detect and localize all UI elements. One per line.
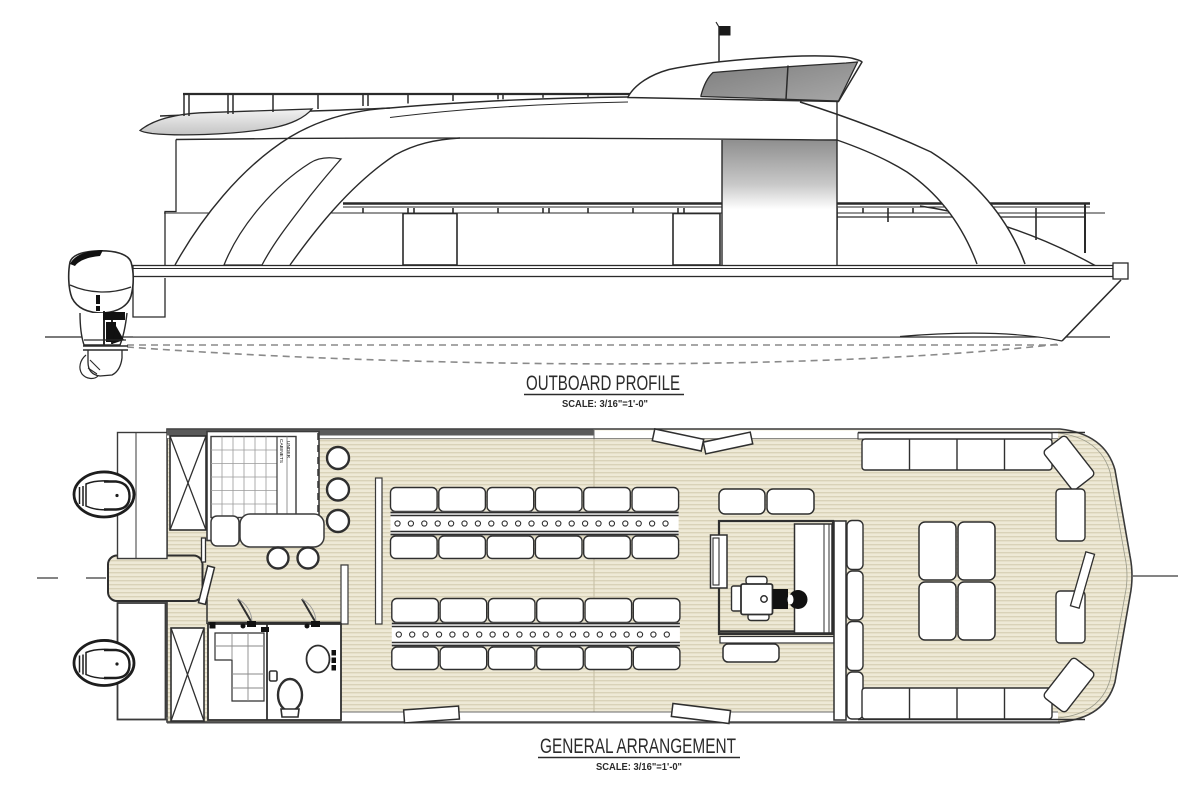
svg-text:GENERAL ARRANGEMENT: GENERAL ARRANGEMENT <box>540 735 736 758</box>
svg-text:OUTBOARD PROFILE: OUTBOARD PROFILE <box>526 372 680 395</box>
svg-text:UNDER: UNDER <box>285 441 291 459</box>
svg-text:CABINETS: CABINETS <box>278 439 284 463</box>
svg-text:SCALE: 3/16"=1'-0": SCALE: 3/16"=1'-0" <box>562 398 648 410</box>
svg-text:SCALE: 3/16"=1'-0": SCALE: 3/16"=1'-0" <box>596 761 682 773</box>
